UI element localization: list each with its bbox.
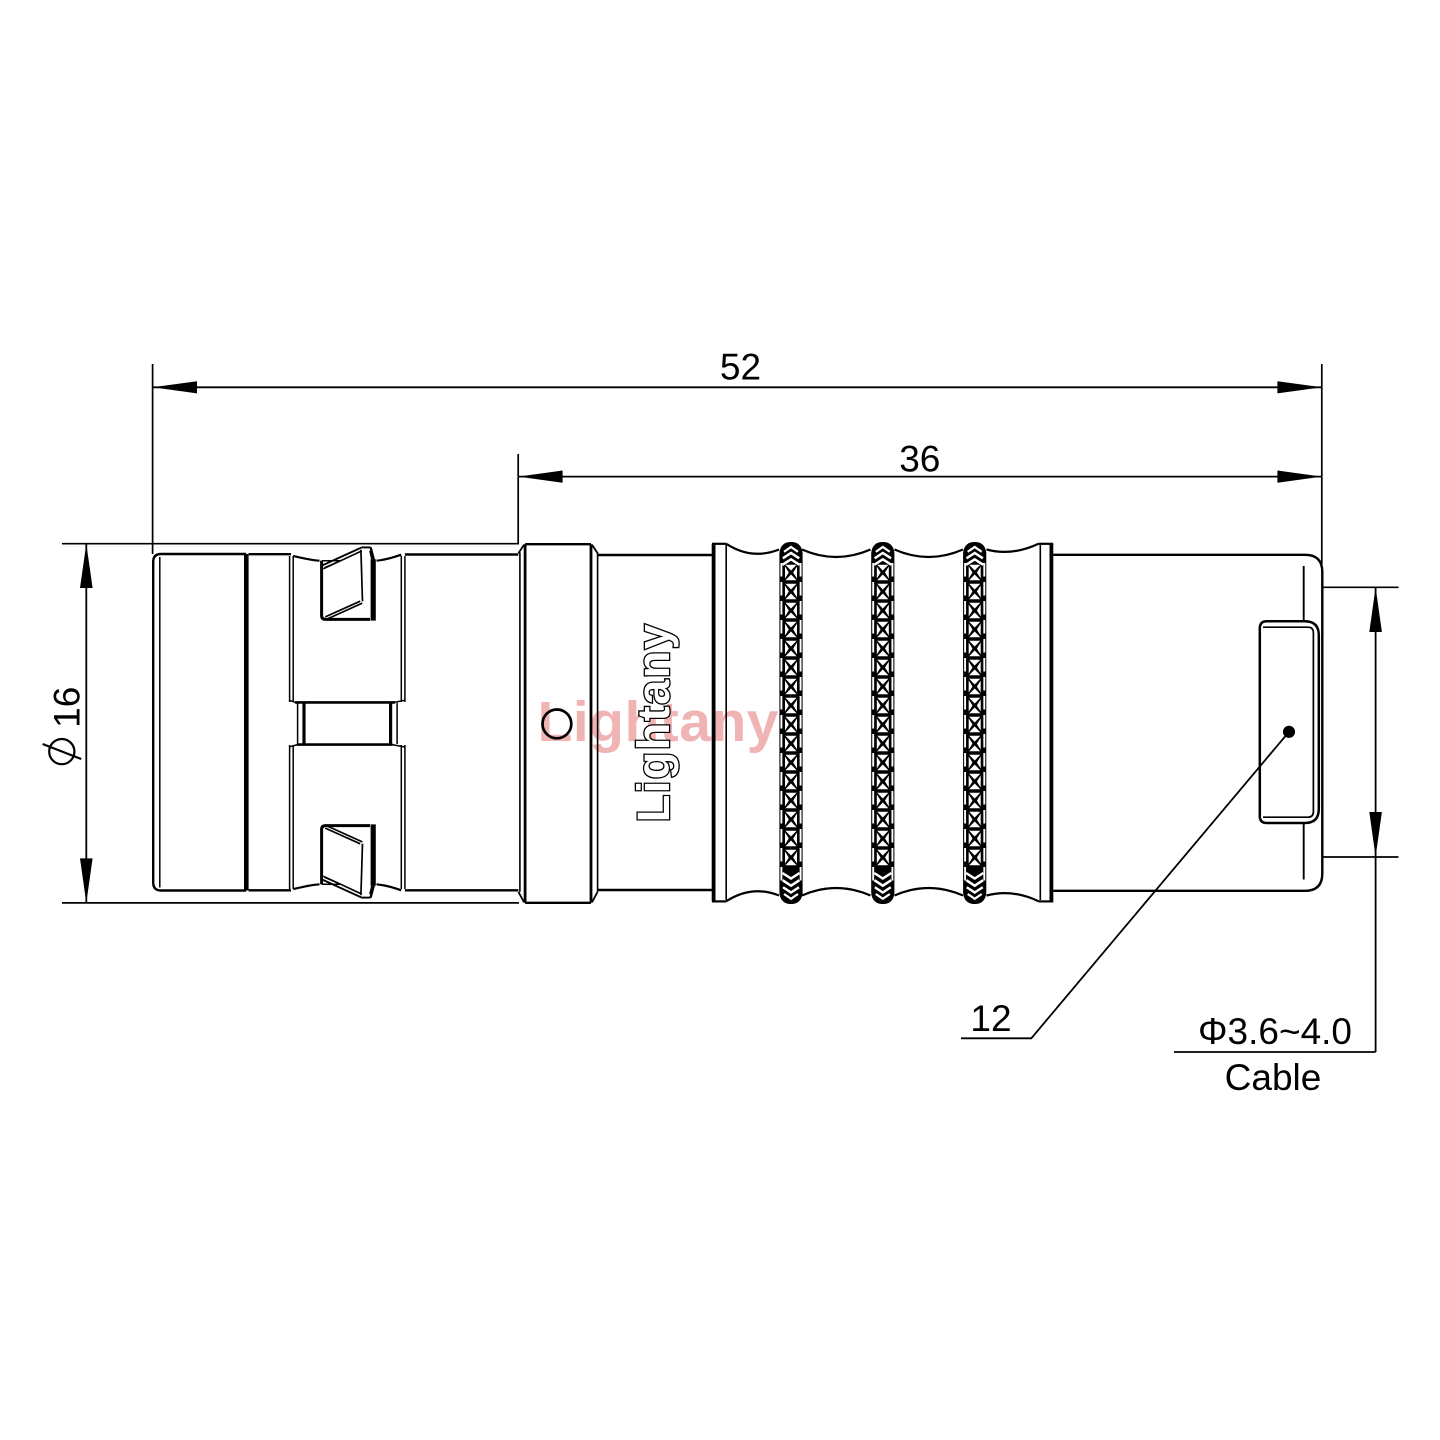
svg-text:16: 16 [46, 687, 87, 728]
svg-text:52: 52 [720, 347, 761, 388]
svg-text:Lightany: Lightany [628, 623, 679, 823]
svg-text:36: 36 [899, 439, 940, 480]
svg-text:Φ3.6~4.0: Φ3.6~4.0 [1198, 1011, 1352, 1052]
svg-text:Cable: Cable [1225, 1057, 1322, 1098]
svg-text:12: 12 [970, 998, 1011, 1039]
